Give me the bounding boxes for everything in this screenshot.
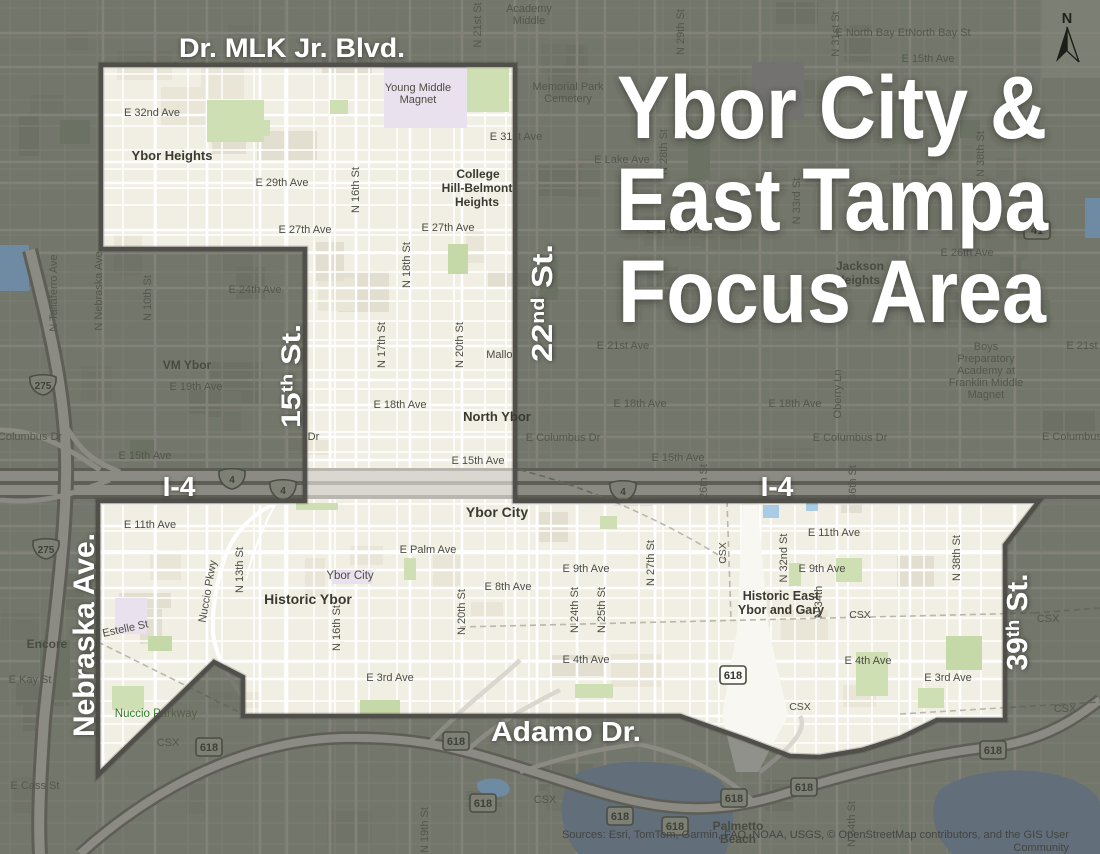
svg-text:N 10th St: N 10th St: [142, 275, 154, 321]
svg-text:E 15th Ave: E 15th Ave: [451, 455, 504, 467]
svg-text:E 15th Ave: E 15th Ave: [118, 450, 171, 462]
svg-text:E 4th Ave: E 4th Ave: [563, 654, 610, 666]
svg-text:Historic East: Historic East: [743, 589, 820, 603]
svg-text:CSX: CSX: [1054, 703, 1077, 715]
svg-text:Ybor City &: Ybor City &: [617, 57, 1047, 157]
svg-text:E 27th Ave: E 27th Ave: [278, 224, 331, 236]
svg-text:E 11th Ave: E 11th Ave: [808, 527, 860, 539]
svg-text:Focus Area: Focus Area: [618, 241, 1047, 341]
svg-text:Magnet: Magnet: [968, 389, 1005, 401]
svg-text:Encore: Encore: [27, 637, 68, 651]
svg-text:College: College: [456, 167, 500, 181]
svg-text:Ybor Heights: Ybor Heights: [132, 148, 213, 163]
svg-text:E Kay St: E Kay St: [9, 674, 52, 686]
svg-text:E 3rd Ave: E 3rd Ave: [924, 672, 972, 684]
svg-text:N 20th St: N 20th St: [454, 322, 466, 368]
svg-text:N 38th St: N 38th St: [951, 535, 963, 581]
svg-text:E 8th Ave: E 8th Ave: [485, 581, 532, 593]
svg-text:Ybor and Gary: Ybor and Gary: [738, 603, 824, 617]
svg-text:E 18th Ave: E 18th Ave: [768, 398, 821, 410]
svg-text:CSX: CSX: [534, 794, 557, 806]
svg-text:E 18th Ave: E 18th Ave: [373, 399, 426, 411]
svg-text:E 29th Ave: E 29th Ave: [255, 177, 308, 189]
svg-text:North Ybor: North Ybor: [463, 409, 531, 424]
svg-text:Middle: Middle: [513, 15, 545, 27]
svg-text:E North Bay EtNorth Bay St: E North Bay EtNorth Bay St: [835, 27, 970, 39]
svg-text:Memorial Park: Memorial Park: [533, 81, 604, 93]
svg-text:618: 618: [984, 745, 1002, 757]
svg-text:E 9th Ave: E 9th Ave: [799, 563, 846, 575]
svg-text:N 16th St: N 16th St: [331, 605, 343, 651]
svg-text:E Columbus Dr: E Columbus Dr: [526, 432, 601, 444]
svg-text:East Tampa: East Tampa: [616, 149, 1049, 249]
svg-text:N 17th St: N 17th St: [376, 322, 388, 368]
svg-text:N 24th St: N 24th St: [569, 587, 581, 633]
svg-text:N: N: [1062, 11, 1072, 27]
svg-text:E 21st Ave: E 21st Ave: [597, 340, 649, 352]
svg-text:E 24th Ave: E 24th Ave: [228, 284, 281, 296]
svg-text:E Cass St: E Cass St: [11, 780, 60, 792]
svg-text:618: 618: [611, 811, 629, 823]
svg-text:Columbus Dr: Columbus Dr: [0, 431, 62, 443]
svg-text:618: 618: [724, 670, 742, 682]
svg-text:Community: Community: [1013, 842, 1069, 854]
svg-text:4: 4: [620, 487, 626, 498]
svg-text:Adamo Dr.: Adamo Dr.: [491, 716, 641, 747]
svg-text:N 20th St: N 20th St: [456, 589, 468, 635]
svg-text:E Palm Ave: E Palm Ave: [400, 544, 457, 556]
svg-text:Hill-Belmont: Hill-Belmont: [442, 181, 513, 195]
svg-text:N 29th St: N 29th St: [675, 9, 687, 55]
svg-text:275: 275: [35, 381, 52, 392]
svg-text:N 32nd St: N 32nd St: [778, 534, 790, 583]
svg-text:Academy: Academy: [506, 3, 552, 15]
svg-text:Magnet: Magnet: [400, 94, 437, 106]
svg-text:Dr. MLK Jr. Blvd.: Dr. MLK Jr. Blvd.: [179, 33, 405, 63]
svg-text:618: 618: [447, 736, 465, 748]
svg-text:Heights: Heights: [455, 195, 499, 209]
svg-text:VM Ybor: VM Ybor: [163, 358, 212, 372]
svg-text:4: 4: [229, 475, 235, 486]
svg-text:618: 618: [200, 742, 218, 754]
svg-text:Ybor City: Ybor City: [326, 570, 374, 582]
svg-text:E 4th Ave: E 4th Ave: [845, 655, 892, 667]
svg-text:Nebraska Ave.: Nebraska Ave.: [68, 533, 101, 737]
svg-text:N 16th St: N 16th St: [350, 167, 362, 213]
svg-text:E Columbus Dr: E Columbus Dr: [813, 432, 888, 444]
svg-text:Young Middle: Young Middle: [385, 82, 451, 94]
svg-text:E 32nd Ave: E 32nd Ave: [124, 107, 180, 119]
svg-text:Cemetery: Cemetery: [544, 93, 592, 105]
svg-text:I-4: I-4: [163, 471, 196, 502]
svg-text:E 3rd Ave: E 3rd Ave: [366, 672, 414, 684]
svg-text:N 21st St: N 21st St: [472, 2, 484, 47]
svg-text:E 21st: E 21st: [1066, 340, 1097, 352]
svg-text:Franklin Middle: Franklin Middle: [949, 377, 1024, 389]
svg-text:Sources: Esri, TomTom, Garmin,: Sources: Esri, TomTom, Garmin, FAO, NOAA…: [562, 829, 1069, 841]
svg-text:618: 618: [725, 793, 743, 805]
svg-text:E 19th Ave: E 19th Ave: [169, 381, 222, 393]
svg-text:E Columbus I: E Columbus I: [1042, 431, 1100, 443]
svg-text:Preparatory: Preparatory: [957, 353, 1015, 365]
svg-text:N 34th: N 34th: [813, 586, 825, 618]
svg-text:N Nebraska Ave: N Nebraska Ave: [93, 251, 105, 330]
svg-text:CSX: CSX: [849, 609, 871, 621]
svg-text:275: 275: [38, 545, 55, 556]
svg-text:N 25th St: N 25th St: [596, 587, 608, 633]
svg-text:Academy at: Academy at: [957, 365, 1015, 377]
svg-text:N Taliaferro Ave: N Taliaferro Ave: [48, 254, 60, 331]
svg-text:E 15th Ave: E 15th Ave: [651, 452, 704, 464]
svg-text:CSX: CSX: [717, 542, 729, 564]
svg-text:E 18th Ave: E 18th Ave: [613, 398, 666, 410]
svg-text:Boys: Boys: [974, 341, 999, 353]
svg-text:E 11th Ave: E 11th Ave: [124, 519, 176, 531]
svg-text:N 31st St: N 31st St: [830, 11, 842, 56]
svg-text:Historic Ybor: Historic Ybor: [264, 591, 352, 607]
svg-text:E 9th Ave: E 9th Ave: [563, 563, 610, 575]
svg-text:618: 618: [474, 798, 492, 810]
svg-text:CSX: CSX: [789, 701, 811, 713]
svg-text:4: 4: [280, 486, 286, 497]
svg-text:I-4: I-4: [761, 471, 794, 502]
svg-text:N 19th St: N 19th St: [419, 807, 431, 853]
svg-text:618: 618: [795, 782, 813, 794]
svg-text:CSX: CSX: [1037, 613, 1060, 625]
svg-text:N 18th St: N 18th St: [401, 242, 413, 288]
svg-text:E 27th Ave: E 27th Ave: [421, 222, 474, 234]
svg-text:Ybor City: Ybor City: [466, 504, 528, 520]
svg-text:Oberry Ln: Oberry Ln: [832, 370, 844, 419]
svg-text:CSX: CSX: [157, 737, 180, 749]
svg-text:N 27th St: N 27th St: [645, 540, 657, 586]
svg-text:N 13th St: N 13th St: [234, 547, 246, 593]
